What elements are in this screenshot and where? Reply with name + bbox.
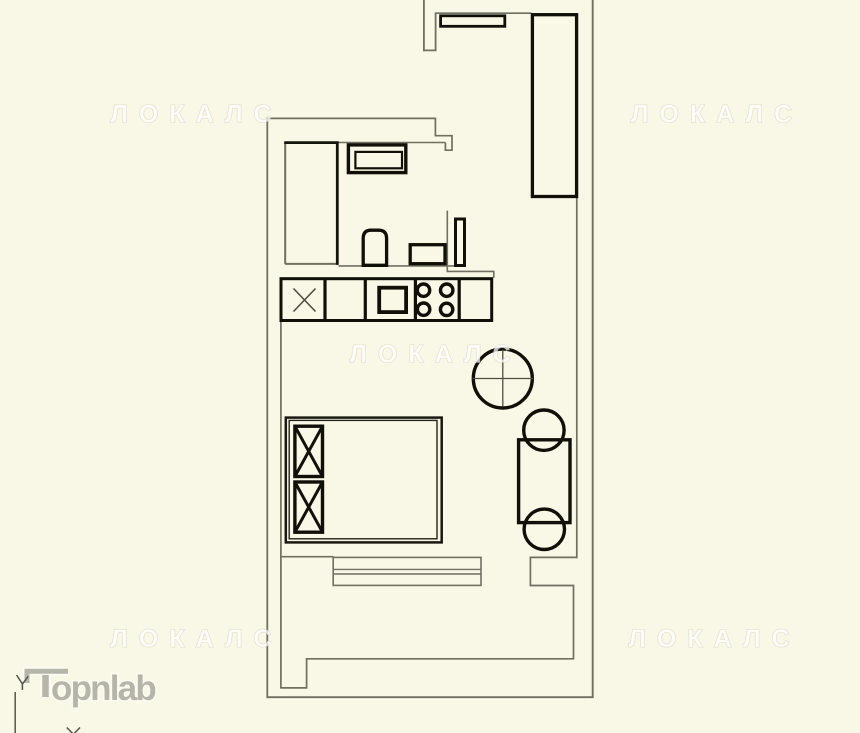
- svg-text:ЛОКАЛС: ЛОКАЛС: [628, 625, 800, 653]
- svg-text:ЛОКАЛС: ЛОКАЛС: [110, 625, 282, 653]
- svg-text:ЛОКАЛС: ЛОКАЛС: [631, 101, 803, 129]
- svg-text:ЛОКАЛС: ЛОКАЛС: [349, 341, 521, 369]
- svg-text:ЛОКАЛС: ЛОКАЛС: [110, 101, 282, 129]
